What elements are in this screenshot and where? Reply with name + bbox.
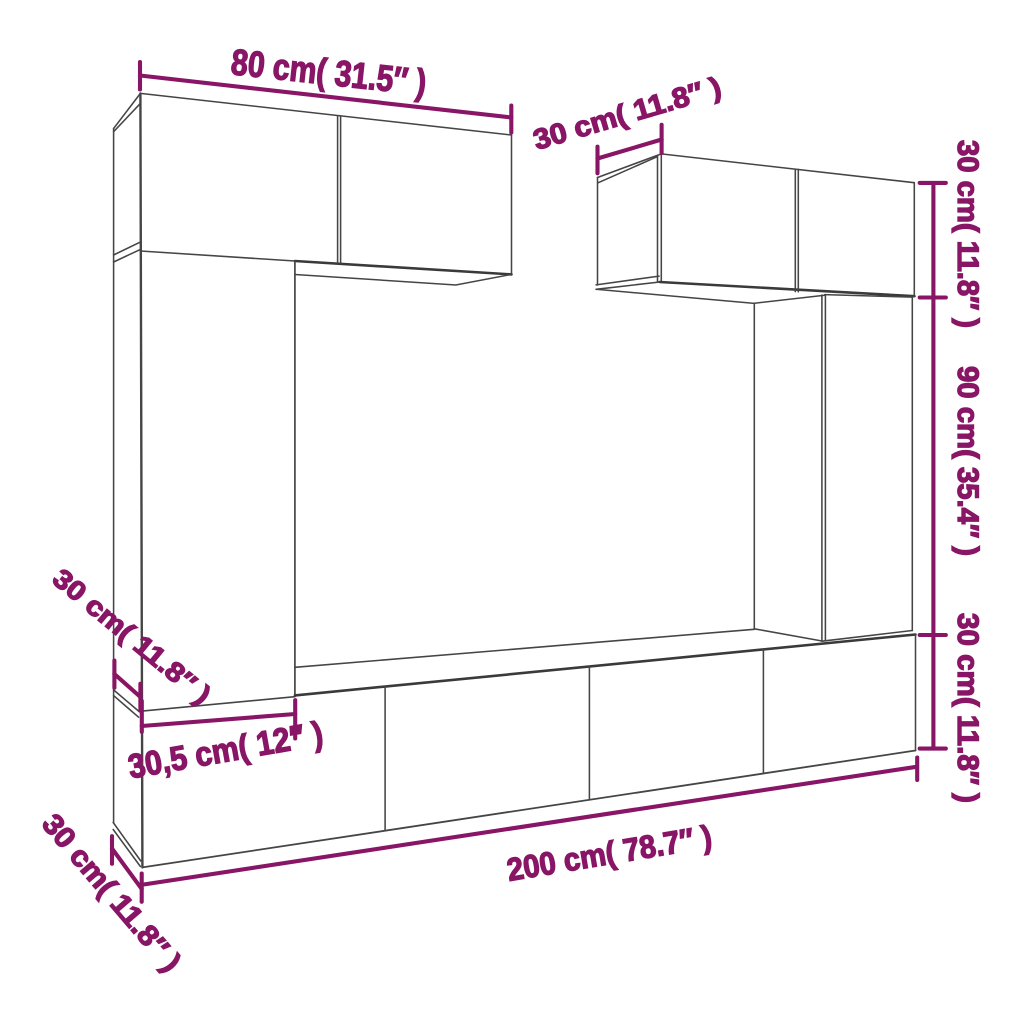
svg-text:30 cm( 11.8″ ): 30 cm( 11.8″ ) [951, 613, 984, 803]
svg-text:90 cm( 35.4″ ): 90 cm( 35.4″ ) [951, 366, 984, 556]
svg-text:30 cm( 11.8″ ): 30 cm( 11.8″ ) [951, 140, 984, 328]
